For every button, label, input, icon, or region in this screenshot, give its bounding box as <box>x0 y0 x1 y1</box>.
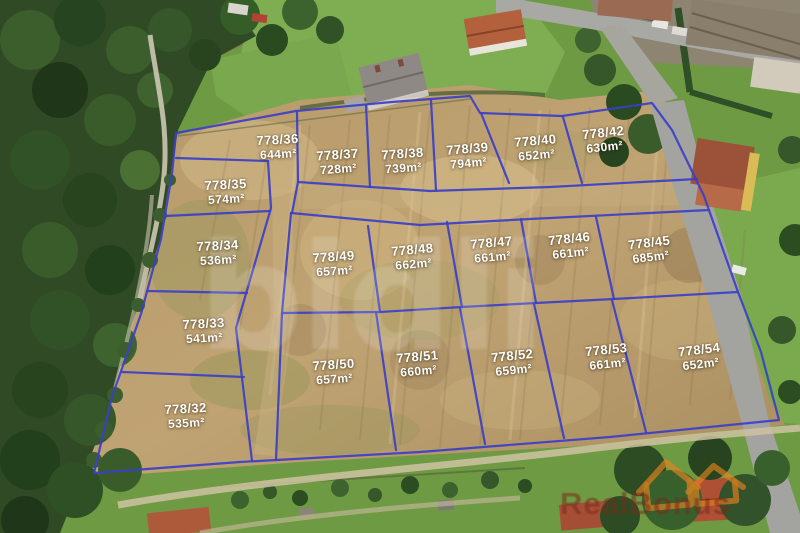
parcel-label-778-34: 778/34536m² <box>196 238 240 268</box>
parcel-label-778-49: 778/49657m² <box>312 249 356 280</box>
parcel-label-778-52: 778/52659m² <box>491 347 536 379</box>
parcel-label-778-32: 778/32535m² <box>164 401 208 431</box>
parcel-label-778-54: 778/54652m² <box>677 341 722 374</box>
parcel-label-778-38: 778/38739m² <box>381 146 425 177</box>
parcel-label-778-35: 778/35574m² <box>204 177 248 207</box>
brand-watermark: RealBonus <box>560 486 731 522</box>
parcel-label-778-40: 778/40652m² <box>514 132 558 164</box>
parcel-label-778-47: 778/47661m² <box>470 234 514 266</box>
parcel-label-778-36: 778/36644m² <box>256 132 300 162</box>
parcel-label-778-51: 778/51660m² <box>396 348 440 380</box>
parcel-label-778-53: 778/53661m² <box>585 341 630 373</box>
parcel-label-778-45: 778/45685m² <box>627 234 672 267</box>
parcel-area: 535m² <box>165 415 208 431</box>
parcel-label-778-39: 778/39794m² <box>446 140 490 172</box>
access-strip-horizontal <box>298 193 700 197</box>
parcel-area: 541m² <box>183 330 226 346</box>
parcel-area: 644m² <box>257 146 300 162</box>
aerial-parcel-map: bidli 778/36644m² 778/37728m² 778/38739m… <box>0 0 800 533</box>
parcel-area: 574m² <box>205 191 248 207</box>
parcel-label-778-37: 778/37728m² <box>316 147 360 178</box>
parcel-label-778-42: 778/42630m² <box>582 124 627 156</box>
parcel-area: 536m² <box>197 252 240 268</box>
parcel-label-778-33: 778/33541m² <box>182 316 226 346</box>
house-yellow-right <box>687 138 761 213</box>
parcel-label-778-50: 778/50657m² <box>312 357 356 388</box>
parcel-label-778-48: 778/48662m² <box>391 241 435 273</box>
parcel-label-778-46: 778/46661m² <box>548 230 593 262</box>
